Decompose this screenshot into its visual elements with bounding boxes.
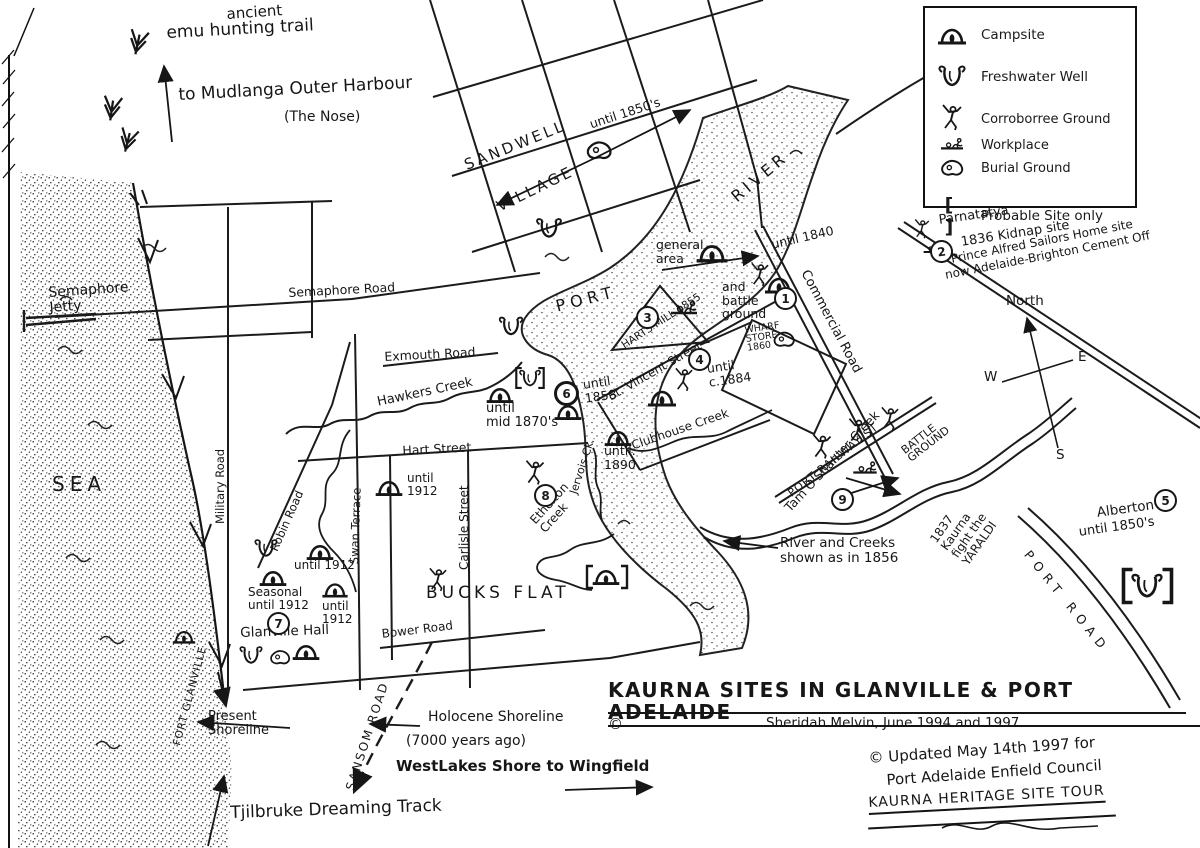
workplace-icon [935,134,969,156]
carlisle-street-label: Carlisle Street [458,485,471,570]
hart-street-label: Hart Street [402,440,472,457]
freshwater-well-icon [1133,575,1162,596]
site-number-4: 4 [688,348,711,371]
freshwater-well-icon [500,318,523,335]
present-shoreline-label: Present Shoreline [208,710,269,738]
legend-label: Burial Ground [981,161,1071,176]
emu-print-icon [127,29,149,56]
holocene-years-label: (7000 years ago) [406,734,526,749]
compass-south-label: S [1056,448,1065,463]
general-area-label: general area [656,238,704,265]
until-c1884-label: until c.1884 [706,356,752,389]
until-mid-1870s-label: until mid 1870's [486,402,558,430]
until-1858-label: until 1858 [582,374,617,405]
legend-row-campsite: Campsite [935,14,1127,60]
bucks-flat-label: BUCKS FLAT [426,584,570,602]
semaphore-jetty-label: Semaphore Jetty [48,280,130,316]
compass-west-label: W [984,370,997,385]
burial-ground-icon [935,156,969,180]
emu-print-icon [102,96,123,122]
credit-label: Sheridah Melvin, June 1994 and 1997 [766,716,1019,731]
campsite-icon [293,646,320,658]
legend-box: Campsite Freshwater Well Corroborree Gro… [923,6,1137,208]
site-number-8: 8 [534,484,557,507]
holocene-shoreline-label: Holocene Shoreline [428,710,563,725]
the-nose-label: (The Nose) [284,110,360,125]
probable-bracket-icon [587,566,593,588]
compass-north-label: North [1006,294,1044,309]
site-number-3: 3 [636,306,659,329]
workplace-icon [853,462,876,472]
probable-bracket-icon [1124,570,1133,603]
westlakes-text: WestLakes Shore to [396,757,569,775]
swan-terrace-label: Swan Terrace [348,487,363,564]
campsite-icon [487,389,514,401]
copyright-symbol: © [608,716,623,732]
corroboree-ground-icon [676,368,692,391]
compass-east-label: E [1078,350,1087,365]
campsite-icon [322,585,347,597]
site-number-7: 7 [267,612,290,635]
legend-label: Corroborree Ground [981,112,1111,127]
wingfield-text: Wingfield [569,757,649,775]
corroboree-ground-icon [915,220,929,239]
freshwater-well-icon [935,62,969,92]
probable-bracket-icon [1163,570,1172,603]
site-number-6: 6 [554,381,579,406]
river-creeks-note: River and Creeks shown as in 1856 [780,536,898,565]
legend-row-workplace: Workplace [935,134,1127,156]
legend-row-burial: Burial Ground [935,156,1127,186]
campsite-icon [555,406,582,418]
legend-label: Campsite [981,27,1045,43]
legend-row-well: Freshwater Well [935,60,1127,102]
seasonal-until-1912-label: Seasonal until 1912 [248,586,309,612]
site-number-1: 1 [774,287,797,310]
freshwater-well-icon [520,371,540,386]
campsite-icon [260,572,287,584]
battle-ground-1-label: and battle ground [722,280,766,321]
campsite-icon [935,20,969,50]
until-1890-label: until. 1890 [604,444,636,471]
site-number-9: 9 [831,488,854,511]
probable-bracket-icon [621,566,627,588]
until-1912-a-label: until 1912 [407,472,438,498]
legend-label: Workplace [981,138,1049,153]
corroboree-ground-icon [935,104,969,134]
wharf-store-label: WHARF STORE 1860 [744,321,783,353]
legend-label: Freshwater Well [981,69,1088,85]
legend-row-corroboree: Corroborree Ground [935,102,1127,134]
emu-print-icon [117,127,139,153]
military-road-label: Military Road [214,449,226,524]
until-1912-b-label: until 1912 [294,559,355,572]
campsite-icon [376,482,403,494]
burial-ground-icon [271,651,289,664]
map-page: Campsite Freshwater Well Corroborree Gro… [0,0,1200,848]
corroboree-ground-icon [882,407,898,430]
campsite-icon [593,571,620,583]
emu-track-icons [102,29,149,153]
sea-label: SEA [52,474,106,496]
sea-texture [18,172,232,848]
site-number-5: 5 [1154,489,1177,512]
freshwater-well-icon [240,647,261,663]
westlakes-note: WestLakes Shore to Wingfield [396,758,649,774]
corroboree-ground-icon [526,461,543,485]
title-underline [608,712,1186,714]
